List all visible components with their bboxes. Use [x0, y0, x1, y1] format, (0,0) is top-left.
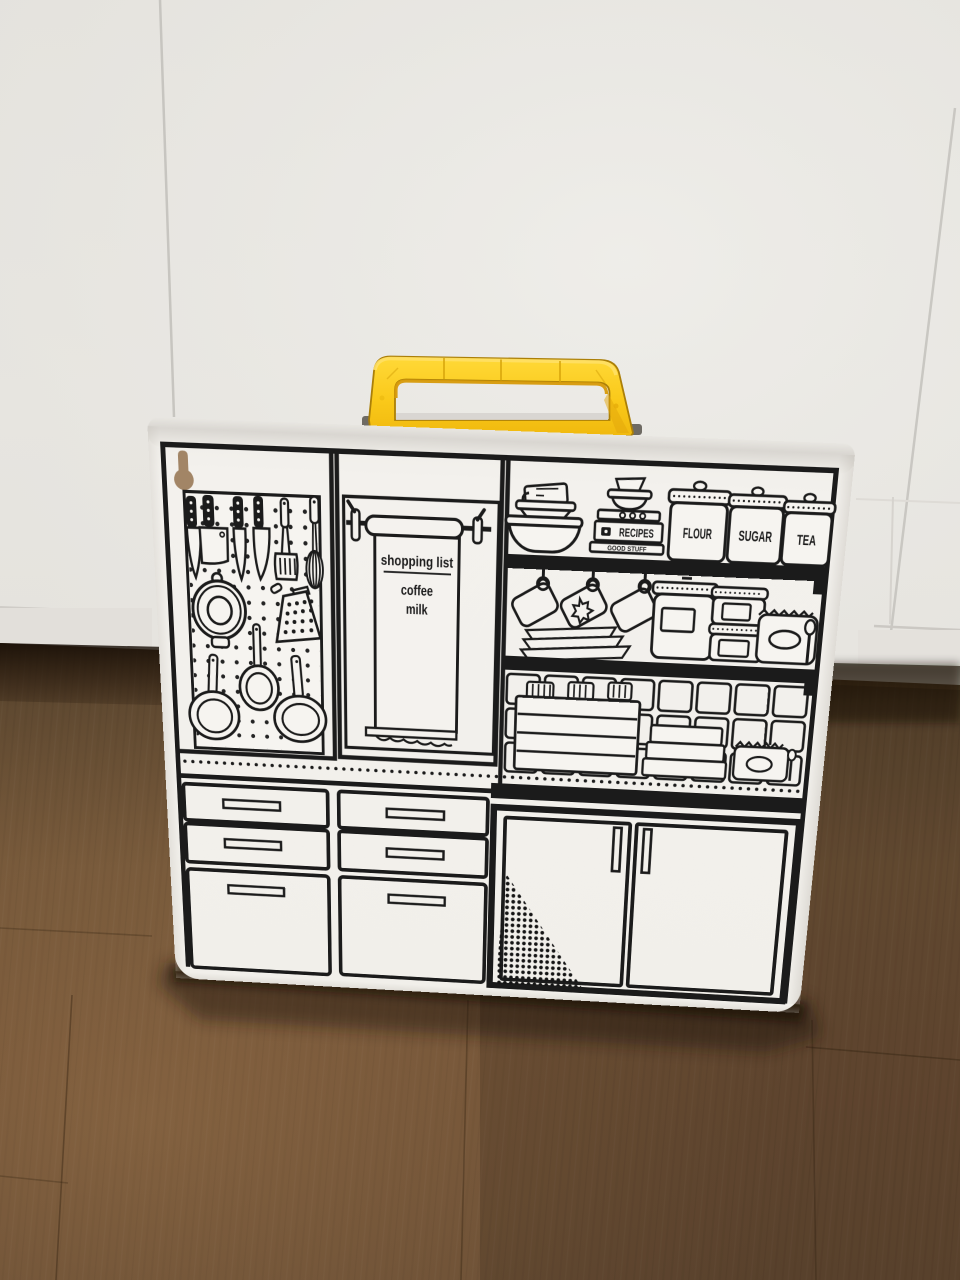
svg-text:SUGAR: SUGAR	[738, 527, 773, 545]
svg-text:coffee: coffee	[401, 582, 433, 600]
svg-text:shopping list: shopping list	[381, 553, 454, 572]
svg-text:milk: milk	[406, 602, 428, 619]
svg-text:RECIPES: RECIPES	[619, 527, 654, 541]
svg-text:FLOUR: FLOUR	[682, 524, 713, 542]
svg-text:TEA: TEA	[796, 532, 817, 549]
